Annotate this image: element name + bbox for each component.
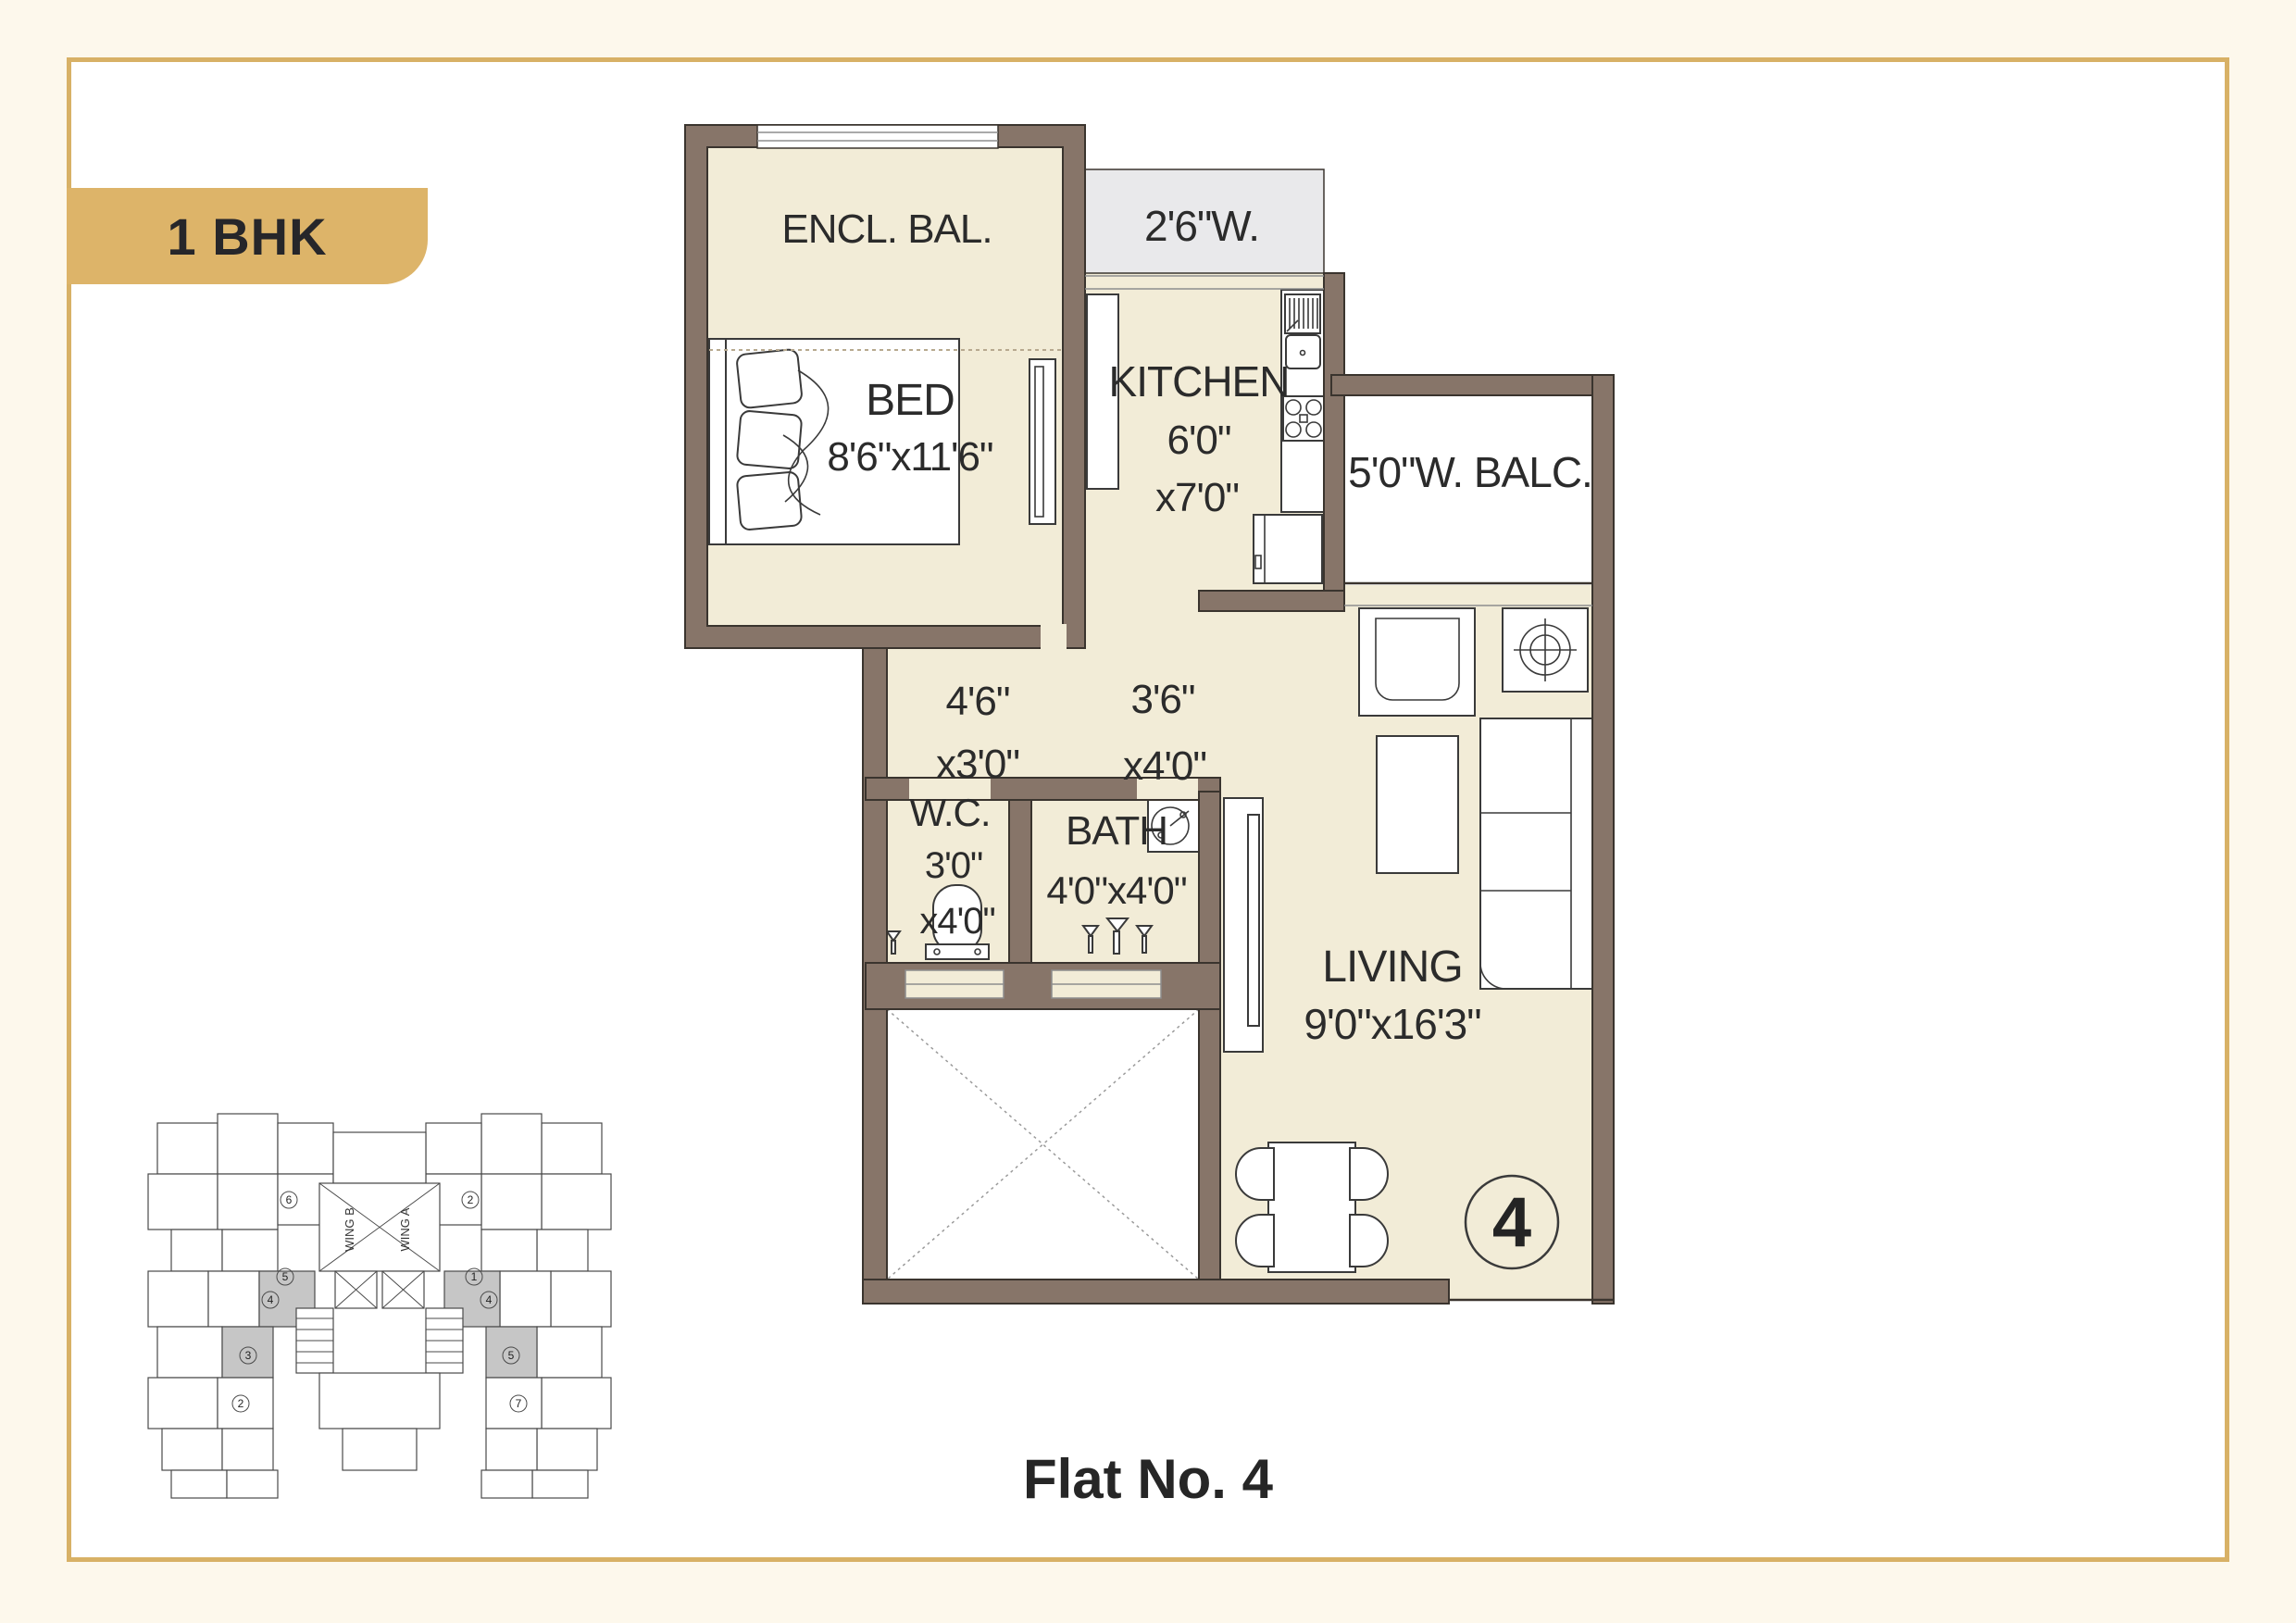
duct-shaft [887,1009,1199,1280]
kitchen-sink [1286,335,1320,368]
armchair [1359,608,1475,716]
passage1-dim2: x3'0" [936,742,1019,787]
kp-num: 5 [508,1349,515,1362]
kitchen-dim2: x7'0" [1155,475,1239,520]
kp-num: 4 [486,1293,493,1306]
bed-label: BED [866,376,955,425]
kp-num: 6 [286,1193,293,1206]
wc-dim2: x4'0" [919,901,994,942]
floor-plan: ENCL. BAL. 2'6"W. BED 8'6"x11'6" KITCHEN… [0,0,2296,1623]
kp-num: 2 [468,1193,474,1206]
kp-num: 3 [245,1349,252,1362]
flat-title-label: Flat No. 4 [1023,1447,1273,1511]
wc-label: W.C. [910,791,991,834]
bath-dims: 4'0"x4'0" [1046,868,1186,912]
bed-dims: 8'6"x11'6" [827,434,992,480]
encl-bal-label: ENCL. BAL. [781,206,992,252]
wardrobe [1029,359,1055,524]
flat-number: 4 [1492,1183,1531,1262]
kitchen-washer [1254,515,1322,583]
passage1-dim1: 4'6" [946,679,1010,724]
key-plan-core: WING B WING A [296,1132,463,1470]
passage2-dim1: 3'6" [1131,677,1195,722]
bedroom-window [757,125,998,148]
sofa [1480,718,1592,989]
center-table [1377,736,1458,873]
kp-num: 4 [268,1293,274,1306]
wing-b-label: WING B [343,1207,356,1252]
window-width-label: 2'6"W. [1144,202,1259,250]
passage2-dim2: x4'0" [1123,743,1206,789]
kp-num: 2 [238,1397,244,1410]
kp-num: 1 [471,1270,478,1283]
tv-unit [1224,798,1263,1052]
kitchen-stove [1283,396,1324,441]
bath-label: BATH [1066,808,1167,854]
washing-machine [1503,608,1588,692]
living-label: LIVING [1322,943,1462,992]
living-dims: 9'0"x16'3" [1304,1000,1480,1048]
kitchen-dim1: 6'0" [1167,418,1231,463]
kitchen-label: KITCHEN [1109,357,1290,406]
wing-a-label: WING A [398,1207,412,1251]
wc-dim1: 3'0" [925,845,982,886]
kp-num: 5 [282,1270,289,1283]
kp-num: 7 [516,1397,522,1410]
flat-title: Flat No. 4 [67,1437,2229,1520]
balcony-label: 5'0"W. BALC. [1348,448,1592,496]
